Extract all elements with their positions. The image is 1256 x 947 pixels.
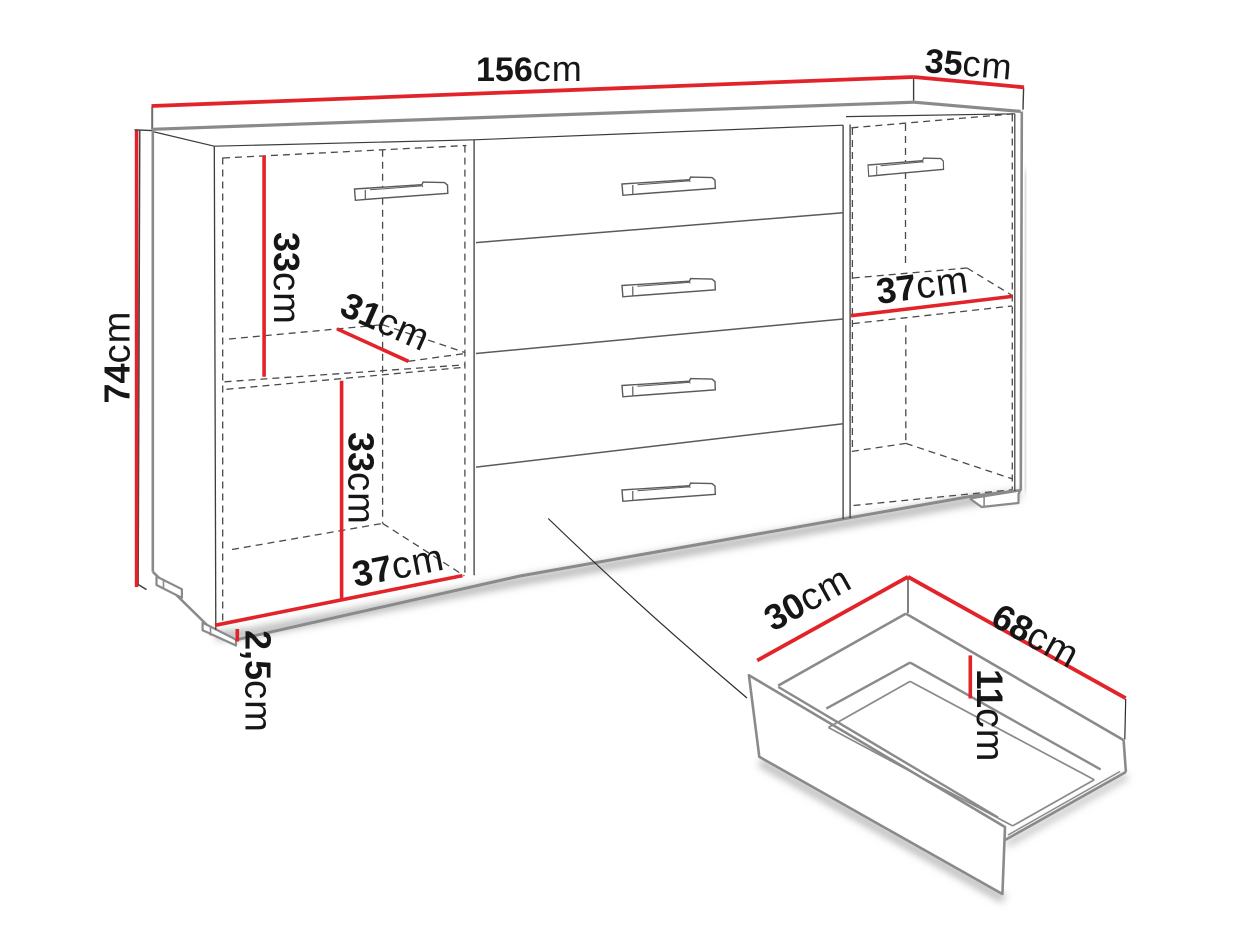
svg-text:11cm: 11cm (968, 669, 1012, 762)
svg-text:2,5cm: 2,5cm (237, 630, 280, 733)
svg-text:74cm: 74cm (96, 311, 139, 404)
svg-text:35cm: 35cm (923, 39, 1014, 88)
svg-text:33cm: 33cm (340, 432, 383, 525)
svg-text:33cm: 33cm (265, 232, 308, 325)
svg-text:156cm: 156cm (476, 48, 583, 89)
